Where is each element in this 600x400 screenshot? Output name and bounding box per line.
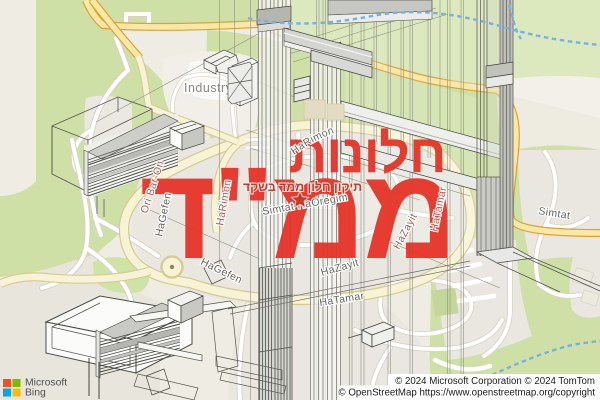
svg-text:ממ"ד: ממ"ד — [140, 139, 455, 286]
svg-text:© 2024 Microsoft Corporation ©: © 2024 Microsoft Corporation © 2024 TomT… — [395, 376, 595, 387]
svg-text:Bing: Bing — [25, 388, 46, 399]
svg-text:Industry: Industry — [184, 81, 233, 95]
svg-text:© OpenStreetMap https://www.op: © OpenStreetMap https://www.openstreetma… — [339, 388, 596, 399]
